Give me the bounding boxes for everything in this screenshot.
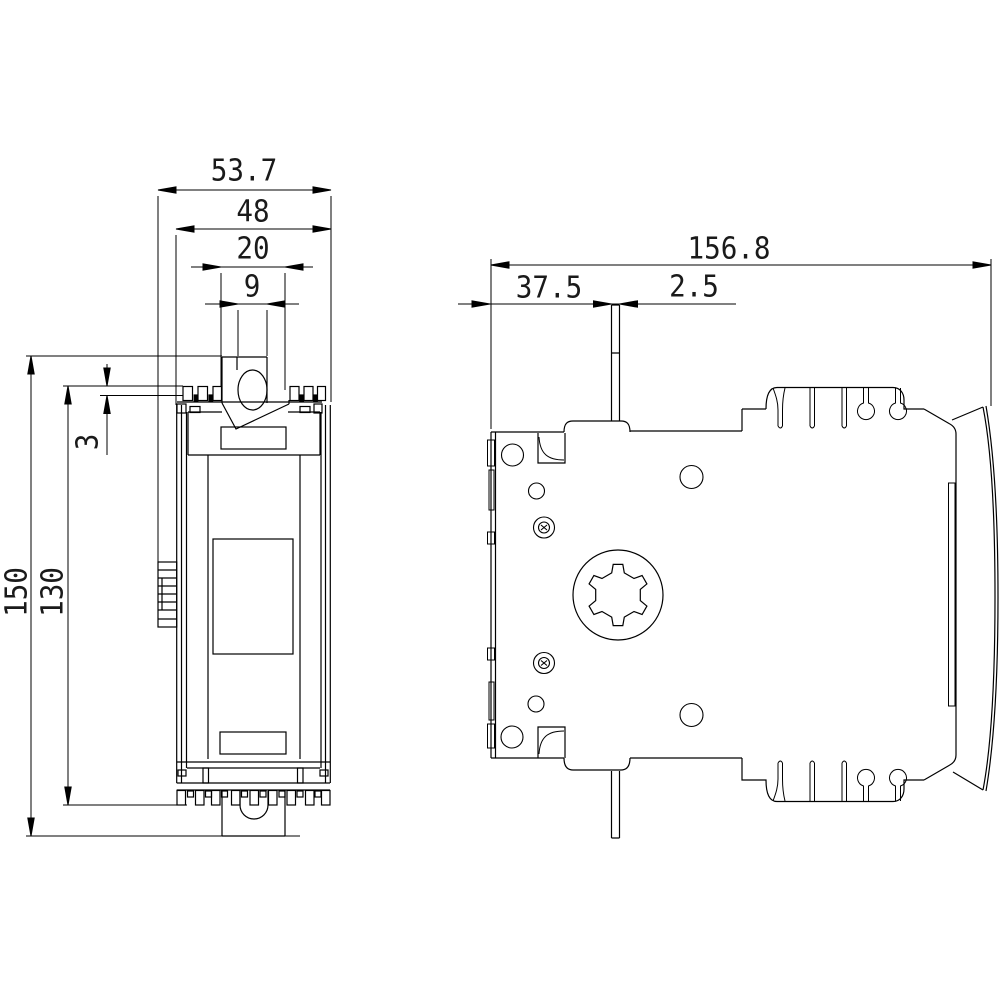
bottom-label-plate [220, 732, 286, 754]
dim-front-rail-offset: 3 [71, 434, 106, 451]
hole [502, 444, 524, 466]
lever-blade-top [612, 305, 620, 421]
mount-notch-bottom [538, 727, 565, 758]
side-ribs [158, 562, 177, 627]
screw-bottom [534, 653, 555, 674]
drawing-canvas [0, 0, 1000, 1000]
hole [501, 726, 523, 748]
front-window [213, 539, 293, 654]
rail-slots-bottom [773, 761, 907, 801]
dimensional-drawing: 53.7 48 20 9 150 130 3 156.8 37.5 2.5 [0, 0, 1000, 1000]
dim-side-lever-thickness: 2.5 [669, 270, 719, 305]
rail-slots-top [773, 388, 907, 428]
spline-knob [573, 550, 663, 640]
front-extension-lines [26, 196, 331, 836]
top-flange [564, 421, 630, 432]
lever-hole [238, 370, 267, 410]
bottom-flange [564, 758, 630, 770]
screw-top [534, 517, 555, 538]
dim-front-body-height: 130 [36, 567, 71, 617]
dim-front-overall-width: 53.7 [211, 154, 277, 189]
dim-front-overall-height: 150 [0, 567, 35, 617]
lever-blade-bottom [612, 771, 620, 838]
side-view [458, 259, 998, 838]
hole [529, 483, 545, 499]
dim-side-overall-depth: 156.8 [687, 232, 770, 267]
hole [680, 466, 703, 489]
dim-side-lever-offset: 37.5 [516, 271, 582, 306]
top-label-plate [221, 427, 286, 449]
front-view [26, 187, 331, 836]
dim-front-body-width: 48 [236, 195, 269, 230]
side-body-outline [491, 388, 956, 802]
hole [528, 696, 544, 712]
mount-notch-top [538, 433, 565, 463]
top-comb-teeth [177, 387, 326, 403]
front-housing [177, 404, 331, 783]
front-base [177, 762, 330, 790]
hole [680, 704, 703, 727]
dim-front-lever-width: 9 [244, 270, 261, 305]
side-holes [501, 444, 703, 748]
dim-front-slot-width: 20 [236, 232, 269, 267]
bottom-comb-teeth [177, 791, 330, 806]
toggle-lever [222, 357, 289, 429]
